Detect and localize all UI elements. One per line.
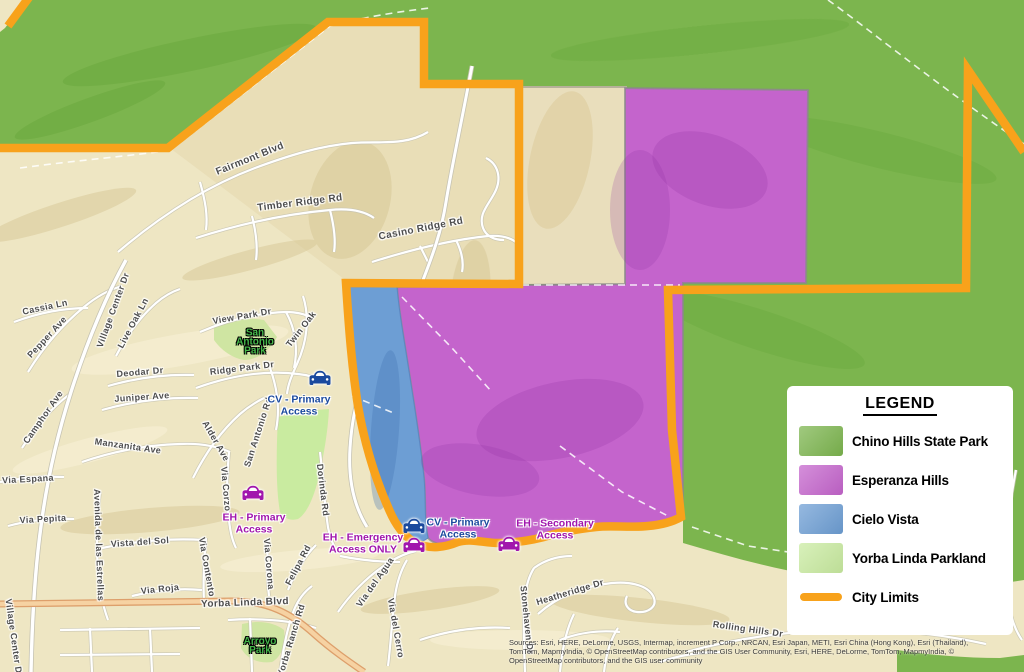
legend-label: Yorba Linda Parkland bbox=[852, 551, 986, 566]
legend-swatch bbox=[799, 543, 843, 573]
map-screenshot: Fairmont Blvd Timber Ridge Rd Casino Rid… bbox=[0, 0, 1024, 672]
legend-label: City Limits bbox=[852, 590, 919, 605]
legend-swatch bbox=[799, 465, 843, 495]
legend-panel: LEGEND Chino Hills State Park Esperanza … bbox=[787, 386, 1013, 635]
legend-title: LEGEND bbox=[799, 395, 1001, 416]
legend-label: Esperanza Hills bbox=[852, 473, 949, 488]
legend-label: Chino Hills State Park bbox=[852, 434, 988, 449]
attribution-text: Sources: Esri, HERE, DeLorme, USGS, Inte… bbox=[509, 639, 1024, 665]
legend-row: Yorba Linda Parkland bbox=[799, 543, 1001, 573]
attribution-line: OpenStreetMap contributors, and the GIS … bbox=[509, 657, 1024, 666]
legend-row: Chino Hills State Park bbox=[799, 426, 1001, 456]
legend-row: City Limits bbox=[799, 582, 1001, 612]
legend-row: Cielo Vista bbox=[799, 504, 1001, 534]
legend-row: Esperanza Hills bbox=[799, 465, 1001, 495]
legend-swatch bbox=[799, 582, 843, 612]
legend-swatch bbox=[799, 504, 843, 534]
legend-label: Cielo Vista bbox=[852, 512, 919, 527]
legend-swatch bbox=[799, 426, 843, 456]
legend-items: Chino Hills State Park Esperanza Hills C… bbox=[799, 426, 1001, 612]
